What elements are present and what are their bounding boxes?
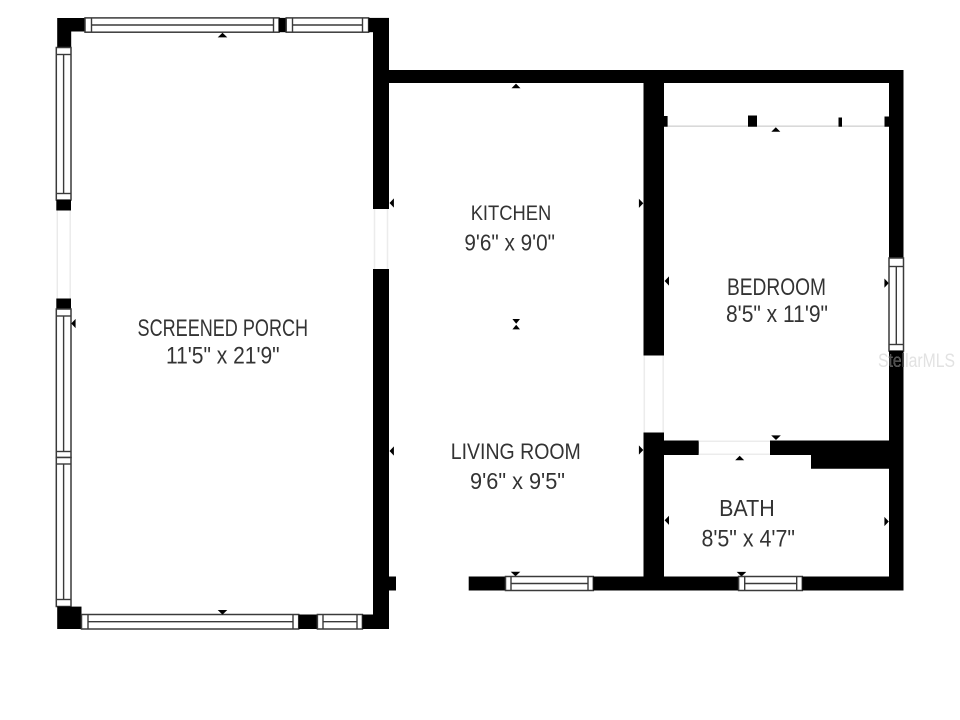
svg-text:SCREENED PORCH: SCREENED PORCH (138, 315, 309, 342)
svg-text:9'6" x 9'0": 9'6" x 9'0" (464, 230, 555, 256)
svg-text:BEDROOM: BEDROOM (727, 274, 826, 301)
svg-text:BATH: BATH (719, 495, 775, 521)
svg-text:8'5" x 4'7": 8'5" x 4'7" (701, 525, 795, 552)
svg-text:8'5" x 11'9": 8'5" x 11'9" (726, 301, 828, 328)
svg-text:9'6" x 9'5": 9'6" x 9'5" (470, 468, 565, 494)
svg-text:KITCHEN: KITCHEN (471, 202, 552, 225)
svg-text:11'5" x 21'9": 11'5" x 21'9" (166, 342, 280, 369)
svg-text:LIVING ROOM: LIVING ROOM (451, 439, 581, 464)
